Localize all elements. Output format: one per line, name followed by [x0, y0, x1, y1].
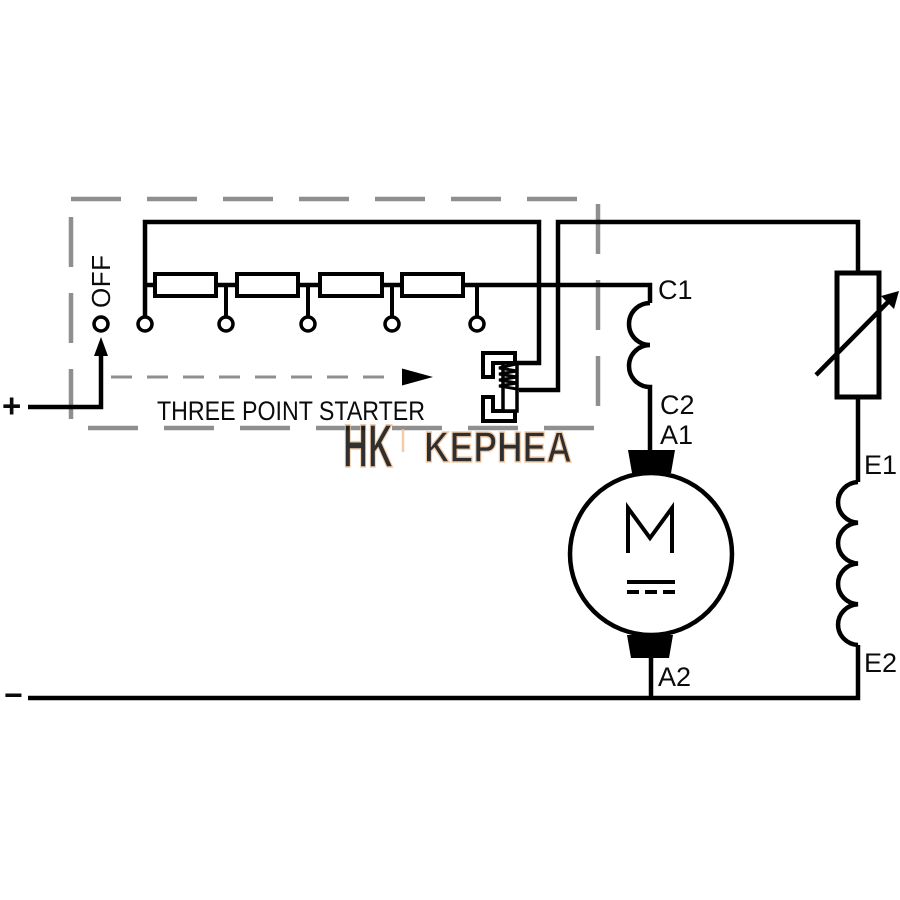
watermark-logo: HK [343, 412, 393, 480]
label-negative-terminal: − [4, 677, 23, 713]
circuit-diagram: M + − OFF THREE POINT STARTER C1 C2 A1 A… [0, 0, 900, 900]
label-c2: C2 [660, 390, 695, 420]
resistor [155, 274, 216, 296]
handle-arrowhead-icon [94, 337, 108, 356]
watermark: HK KEPHEA [343, 412, 572, 480]
travel-arrowhead-icon [402, 369, 433, 386]
wire-positive-lead [28, 352, 101, 407]
contact-stud [301, 317, 315, 331]
label-e2: E2 [864, 648, 897, 678]
contact-stud [470, 317, 484, 331]
motor-body [570, 473, 732, 635]
contact-studs [94, 317, 484, 331]
holding-coil [483, 353, 519, 421]
field-rheostat [816, 273, 899, 397]
wire-resistor-chain [145, 285, 650, 303]
starter-enclosure [71, 199, 598, 428]
circuit-page: M + − OFF THREE POINT STARTER C1 C2 A1 A… [0, 0, 900, 900]
brush-bottom [627, 635, 673, 658]
series-field-winding [629, 303, 650, 450]
wire-negative-bus [28, 645, 858, 698]
motor: M [570, 450, 732, 658]
contact-stud [219, 317, 233, 331]
contact-stud [385, 317, 399, 331]
off-stud [94, 317, 108, 331]
resistor [320, 274, 382, 296]
series-field-coil [629, 303, 650, 450]
label-positive-terminal: + [2, 387, 21, 424]
label-e1: E1 [864, 450, 897, 480]
travel-arrow [111, 369, 433, 386]
shunt-field-winding [838, 482, 858, 645]
label-a1: A1 [660, 420, 693, 450]
watermark-text: KEPHEA [424, 423, 572, 472]
label-a2: A2 [658, 662, 691, 692]
resistor [402, 274, 463, 296]
brush-top [628, 450, 675, 473]
label-off: OFF [86, 255, 116, 309]
contact-stud [138, 317, 152, 331]
resistor [237, 274, 298, 296]
starter-enclosure-border [71, 199, 598, 428]
label-c1: C1 [658, 275, 693, 305]
shunt-field-coil [838, 482, 858, 645]
wire-holding-coil-to-rheostat [519, 222, 858, 390]
handle-arm [28, 337, 108, 407]
